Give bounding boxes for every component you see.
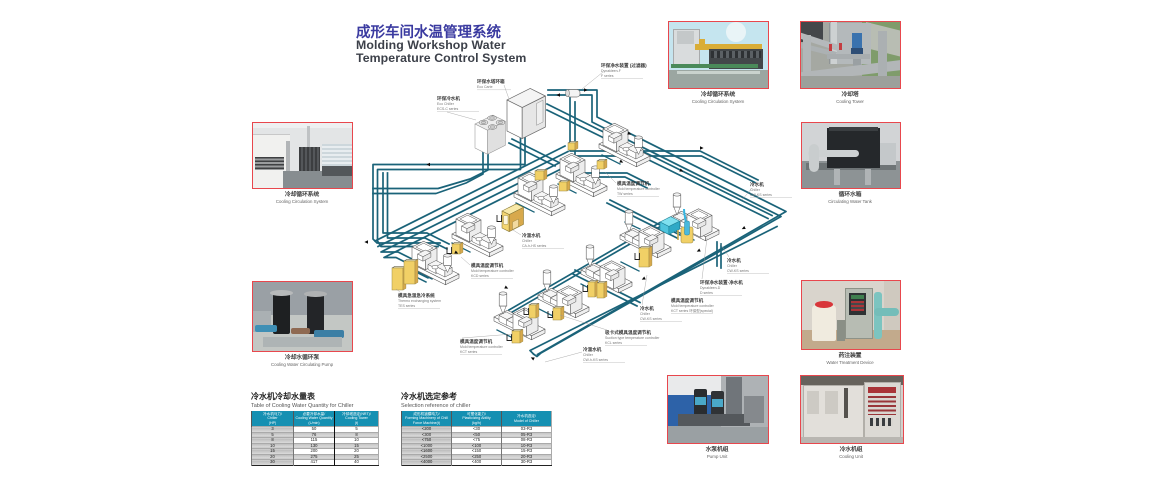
svg-text:KCT series 环保型(special): KCT series 环保型(special) <box>671 308 713 313</box>
svg-text:CW-KS series: CW-KS series <box>727 269 749 273</box>
svg-text:Eco Carte: Eco Carte <box>477 85 493 89</box>
svg-text:环保水塔环箱: 环保水塔环箱 <box>477 78 505 85</box>
svg-text:模具温度调节机: 模具温度调节机 <box>460 338 493 345</box>
svg-text:Chiller: Chiller <box>750 188 761 192</box>
svg-text:Mold temperature controller: Mold temperature controller <box>471 269 515 273</box>
svg-text:模具温度调节机: 模具温度调节机 <box>617 180 650 187</box>
svg-text:模具温度调节机: 模具温度调节机 <box>671 297 704 304</box>
svg-text:模具温度调节机: 模具温度调节机 <box>471 262 504 269</box>
svg-text:KCD series: KCD series <box>471 274 489 278</box>
svg-text:D series: D series <box>700 291 713 295</box>
svg-text:CA-h-HS series: CA-h-HS series <box>522 244 547 248</box>
svg-text:Chiller: Chiller <box>583 353 594 357</box>
svg-text:Dynakleen-D: Dynakleen-D <box>700 286 721 290</box>
svg-text:模具急温急冷系统: 模具急温急冷系统 <box>398 292 435 299</box>
svg-text:Dynakleen-F: Dynakleen-F <box>601 69 621 73</box>
svg-text:环保净水装置-净水机: 环保净水装置-净水机 <box>700 279 743 286</box>
svg-text:冷水机: 冷水机 <box>640 305 654 312</box>
svg-text:F series: F series <box>601 74 614 78</box>
svg-text:TW series: TW series <box>617 192 633 196</box>
svg-text:环保冷水机: 环保冷水机 <box>437 95 460 102</box>
svg-text:ECS-C series: ECS-C series <box>437 107 458 111</box>
svg-text:Chiller: Chiller <box>727 264 738 268</box>
svg-text:Thermo exchanging system: Thermo exchanging system <box>398 299 441 303</box>
svg-text:CW-KS series: CW-KS series <box>640 317 662 321</box>
svg-text:Mold temperature controller: Mold temperature controller <box>671 304 715 308</box>
svg-text:冷水机: 冷水机 <box>750 181 764 188</box>
svg-text:环保净水装置 (过滤器): 环保净水装置 (过滤器) <box>601 62 647 69</box>
svg-text:冷温水机: 冷温水机 <box>522 232 541 239</box>
svg-text:CW-h-KS series: CW-h-KS series <box>583 358 608 362</box>
svg-text:冷温水机: 冷温水机 <box>583 346 602 353</box>
svg-text:Suction type temperature contr: Suction type temperature controller <box>605 336 660 340</box>
svg-text:TES series: TES series <box>398 304 415 308</box>
svg-text:Chiller: Chiller <box>640 312 651 316</box>
svg-text:Eco Chiller: Eco Chiller <box>437 102 455 106</box>
svg-text:KCT series: KCT series <box>460 350 477 354</box>
svg-text:Mold temperature controller: Mold temperature controller <box>460 345 504 349</box>
svg-text:吸卡式模具温度调节机: 吸卡式模具温度调节机 <box>605 329 651 336</box>
svg-text:Mold temperature controller: Mold temperature controller <box>617 187 661 191</box>
svg-text:KCL series: KCL series <box>605 341 622 345</box>
svg-text:CW-KS series: CW-KS series <box>750 193 772 197</box>
svg-text:冷水机: 冷水机 <box>727 257 741 264</box>
svg-text:Chiller: Chiller <box>522 239 533 243</box>
